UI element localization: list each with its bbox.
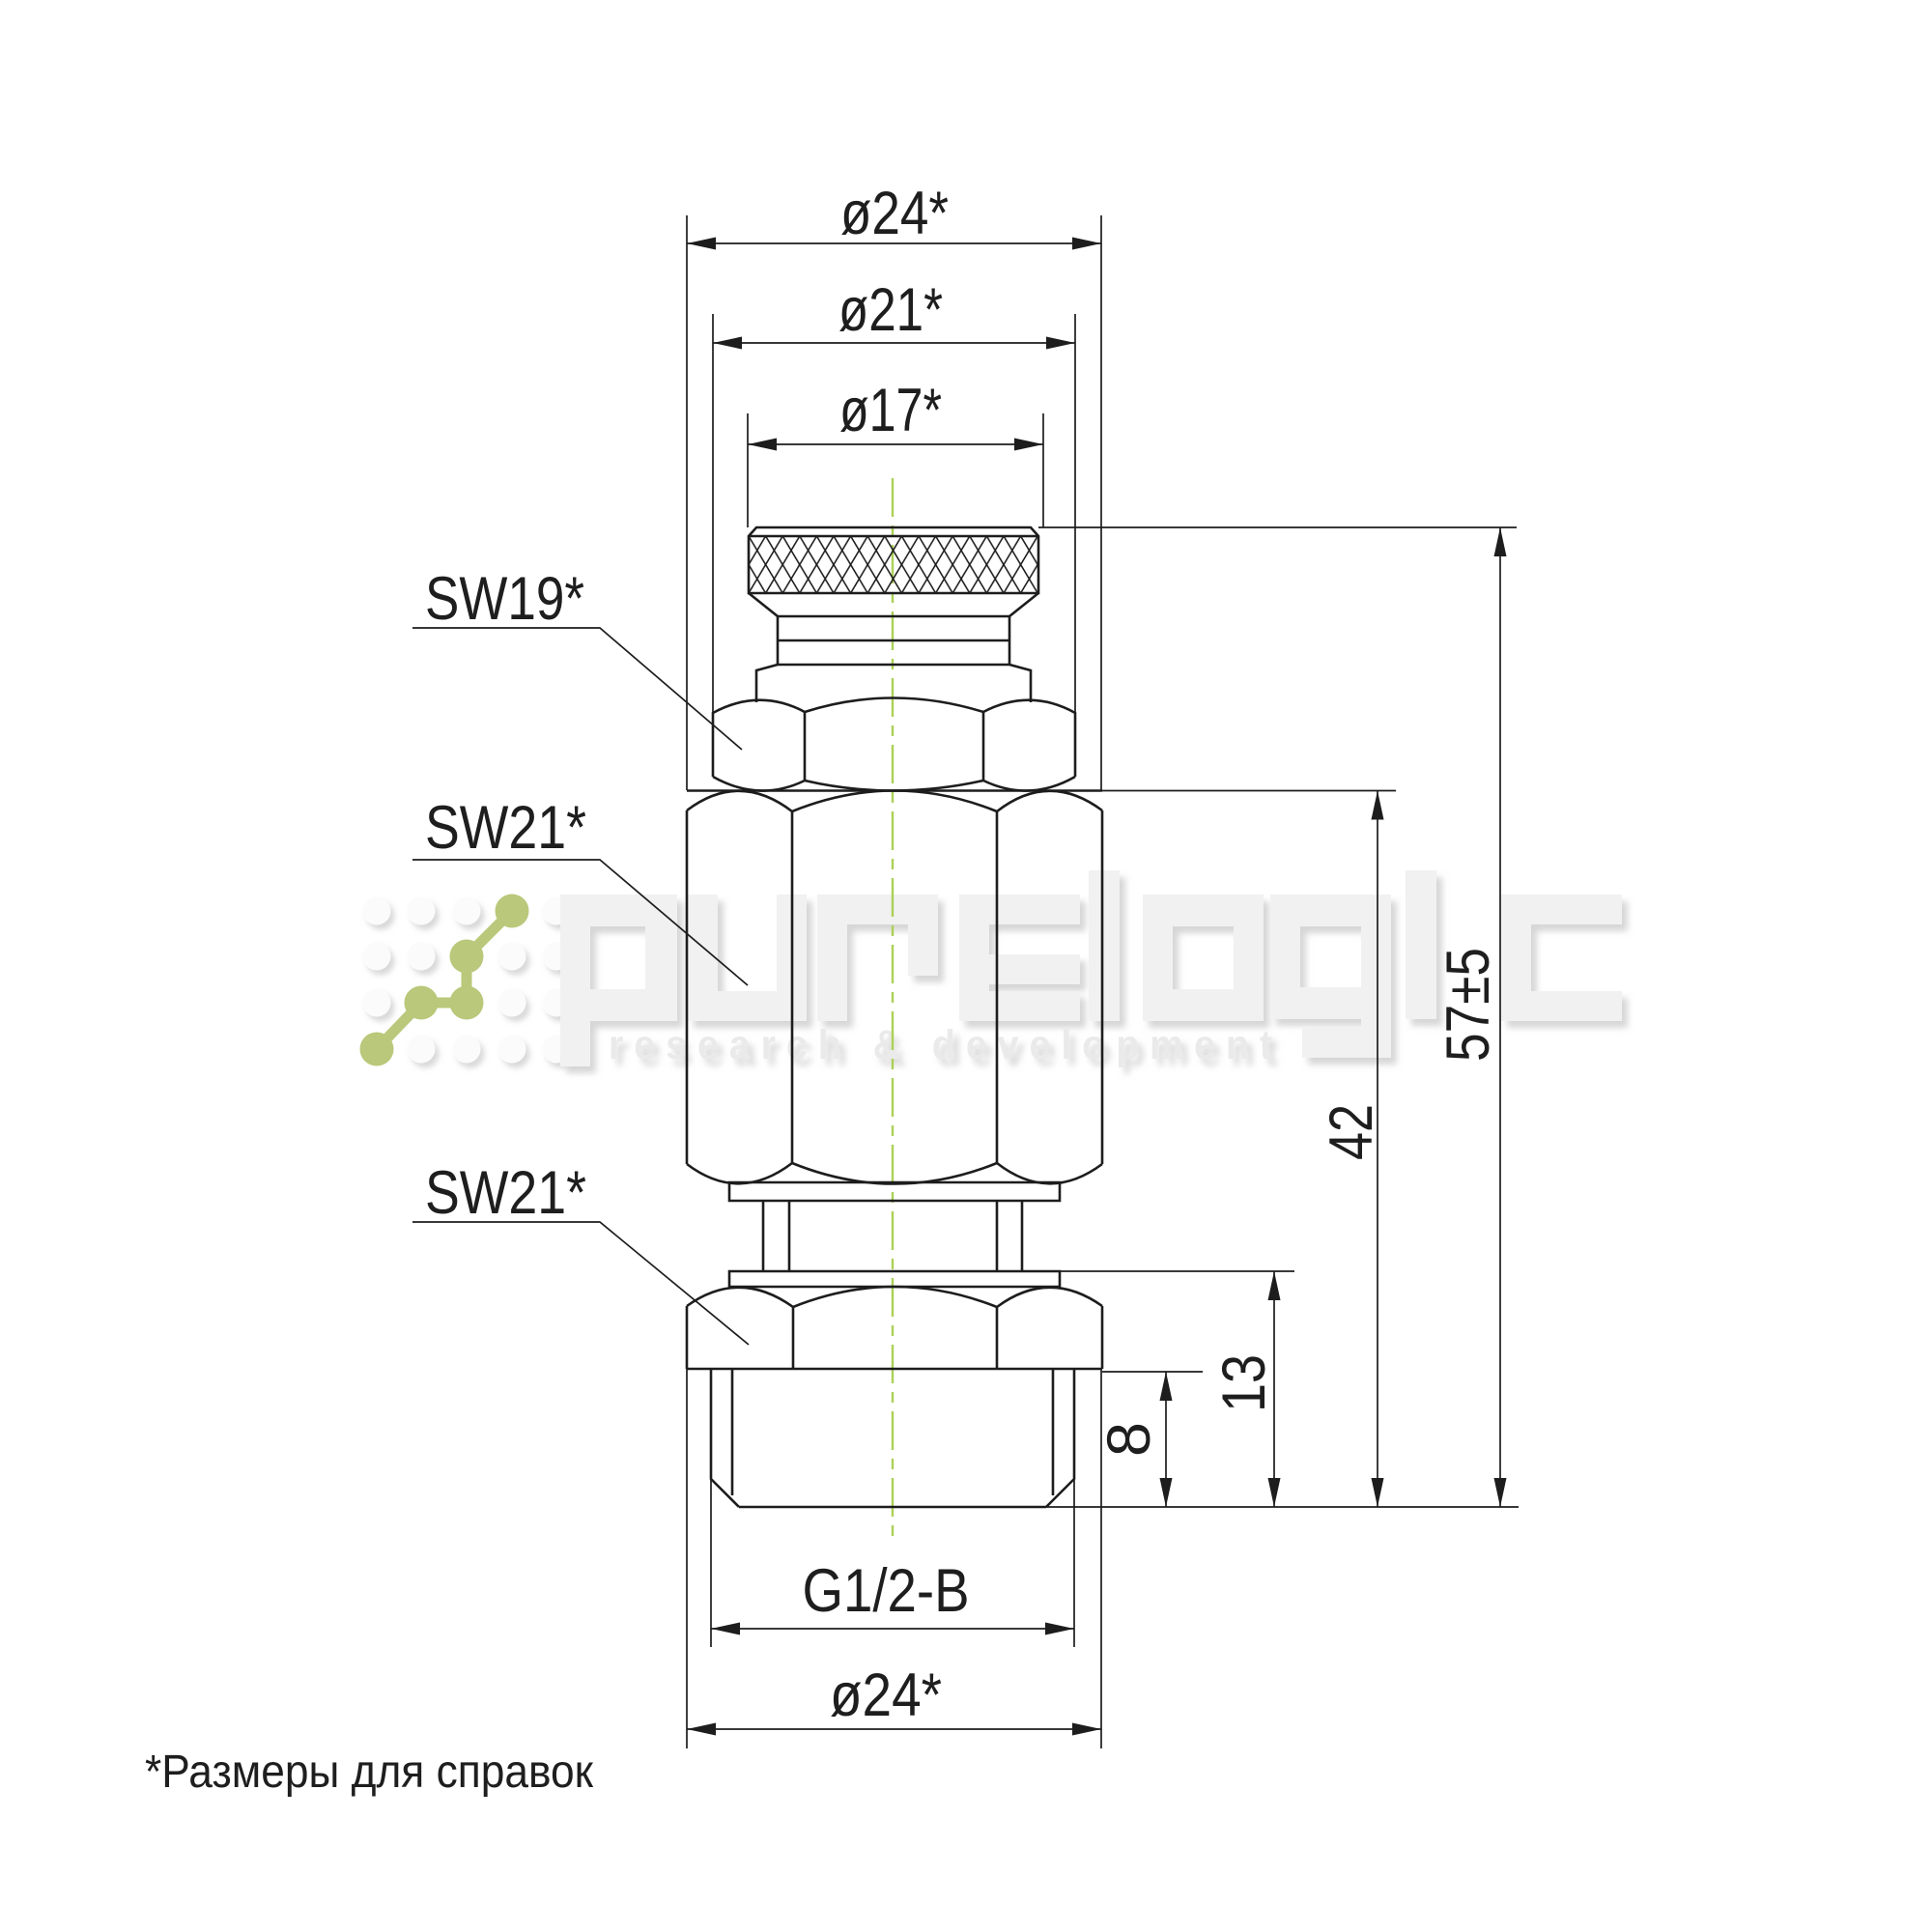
svg-text:SW21*: SW21* [425,1159,586,1227]
svg-text:*Размеры для справок: *Размеры для справок [145,1747,594,1798]
svg-text:research & development: research & development [609,1022,1283,1068]
svg-text:SW19*: SW19* [425,565,584,633]
svg-text:57±5: 57±5 [1435,948,1502,1062]
svg-text:G1/2-B: G1/2-B [803,1557,970,1625]
svg-text:SW21*: SW21* [425,794,586,862]
svg-text:ø24*: ø24* [830,1662,942,1729]
svg-text:ø24*: ø24* [840,180,949,247]
svg-text:42: 42 [1318,1104,1385,1160]
svg-text:ø17*: ø17* [839,377,942,444]
svg-text:8: 8 [1095,1422,1163,1457]
svg-text:ø21*: ø21* [838,276,943,344]
svg-text:13: 13 [1210,1354,1278,1412]
